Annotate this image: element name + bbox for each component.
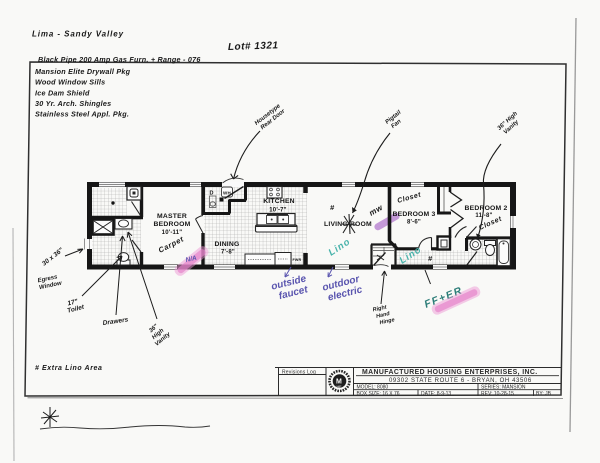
svg-text:Mansion Elite Drywall Pkg: Mansion Elite Drywall Pkg bbox=[35, 67, 131, 76]
svg-text:BOX SIZE: 16 X 76: BOX SIZE: 16 X 76 bbox=[357, 391, 400, 397]
svg-text:HE: HE bbox=[337, 385, 343, 389]
svg-text:SERIES: MANSION: SERIES: MANSION bbox=[481, 385, 526, 391]
svg-text:MASTER: MASTER bbox=[157, 213, 187, 220]
svg-text:30 Yr. Arch. Shingles: 30 Yr. Arch. Shingles bbox=[35, 99, 111, 108]
svg-text:DATE: 8-9-13: DATE: 8-9-13 bbox=[421, 391, 451, 397]
svg-text:7'-8": 7'-8" bbox=[221, 250, 235, 256]
svg-text:BEDROOM 2: BEDROOM 2 bbox=[465, 205, 508, 212]
svg-text:11'-8": 11'-8" bbox=[475, 213, 492, 219]
svg-text:Black Pipe 200 Amp Gas Furn. +: Black Pipe 200 Amp Gas Furn. + Range - 0… bbox=[38, 55, 201, 64]
svg-text:Ice Dam Shield: Ice Dam Shield bbox=[35, 89, 90, 98]
svg-text:BY: JB: BY: JB bbox=[536, 391, 552, 397]
svg-text:Wood Window Sills: Wood Window Sills bbox=[35, 78, 105, 87]
svg-text:BEDROOM 3: BEDROOM 3 bbox=[393, 211, 436, 218]
svg-text:BEDROOM: BEDROOM bbox=[154, 221, 191, 228]
svg-text:10'-7": 10'-7" bbox=[269, 208, 286, 214]
svg-text:FWR: FWR bbox=[293, 258, 302, 262]
svg-text:Lot# 1321: Lot# 1321 bbox=[228, 40, 279, 53]
svg-text:Stainless Steel Appl. Pkg.: Stainless Steel Appl. Pkg. bbox=[35, 110, 129, 119]
svg-text:REV: 10-28-15: REV: 10-28-15 bbox=[481, 391, 514, 397]
svg-text:8'-6": 8'-6" bbox=[407, 220, 421, 226]
svg-text:MODEL: 8080: MODEL: 8080 bbox=[357, 385, 389, 391]
svg-text:# Extra Lino Area: # Extra Lino Area bbox=[35, 365, 103, 372]
svg-text:MANUFACTURED HOUSING ENTERPRIS: MANUFACTURED HOUSING ENTERPRISES, INC. bbox=[362, 369, 538, 376]
svg-text:KITCHEN: KITCHEN bbox=[263, 198, 295, 205]
svg-text:Revisions Log: Revisions Log bbox=[282, 370, 316, 376]
svg-text:DINING: DINING bbox=[215, 241, 240, 248]
svg-text:Lima - Sandy Valley: Lima - Sandy Valley bbox=[32, 30, 124, 39]
